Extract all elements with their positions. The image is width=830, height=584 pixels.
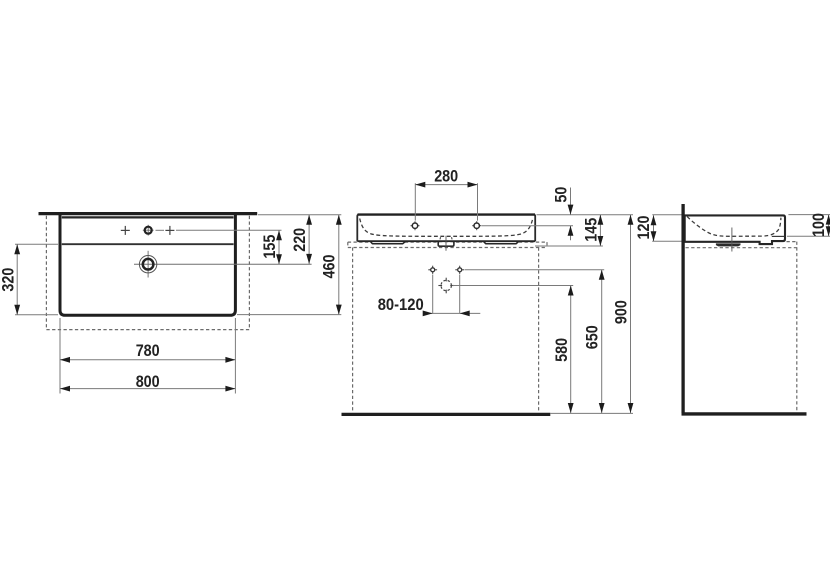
- svg-text:50: 50: [552, 187, 570, 203]
- svg-text:100: 100: [810, 213, 828, 237]
- svg-text:900: 900: [613, 300, 631, 324]
- svg-text:780: 780: [136, 342, 160, 360]
- svg-text:280: 280: [434, 168, 458, 186]
- svg-text:800: 800: [136, 373, 160, 391]
- svg-text:580: 580: [553, 338, 571, 362]
- svg-text:80-120: 80-120: [378, 296, 424, 314]
- svg-text:650: 650: [584, 325, 602, 349]
- svg-text:145: 145: [583, 218, 601, 242]
- svg-text:120: 120: [635, 216, 653, 240]
- svg-text:320: 320: [0, 268, 18, 292]
- svg-text:155: 155: [261, 235, 279, 259]
- svg-text:460: 460: [321, 255, 339, 279]
- svg-text:220: 220: [291, 228, 309, 252]
